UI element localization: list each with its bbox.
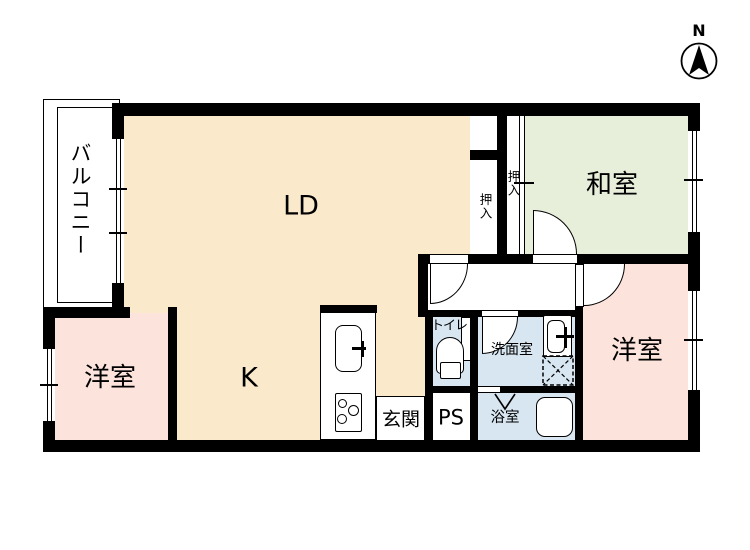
wall-toilet-right xyxy=(470,310,478,440)
wall-closet-stub xyxy=(470,150,497,160)
window-glazing xyxy=(692,131,693,232)
living-dining-floor xyxy=(124,116,470,256)
window-tick xyxy=(684,339,703,341)
window-ld-balcony xyxy=(112,139,124,283)
doorway-ld-hall xyxy=(430,254,468,264)
closet-ld-label: 押入 xyxy=(478,193,491,220)
doorway-japanese-room xyxy=(533,254,577,264)
compass-north-label: N xyxy=(692,23,705,39)
wall-top xyxy=(112,103,700,116)
wall-western-left-top xyxy=(43,307,130,318)
wall-bottom xyxy=(43,440,700,452)
toilet-label: トイレ xyxy=(431,320,467,333)
bathtub-icon xyxy=(536,397,573,437)
western-room-left-label: 洋室 xyxy=(84,365,136,391)
washing-machine-pan-icon xyxy=(542,355,574,386)
closet-washitsu-label: 押入 xyxy=(506,170,519,197)
window-glazing xyxy=(116,139,117,283)
wall-western-right-left xyxy=(575,305,583,440)
entrance-label: 玄関 xyxy=(382,411,420,430)
window-tick xyxy=(109,188,127,190)
living-dining-floor xyxy=(124,256,418,310)
window-glazing xyxy=(696,131,697,232)
window-tick xyxy=(109,232,127,234)
faucet-icon xyxy=(556,335,574,338)
folding-door-icon xyxy=(493,393,517,411)
kitchen-counter-top xyxy=(320,305,377,313)
bathroom-label: 浴室 xyxy=(491,411,520,426)
balcony-label: バルコニー xyxy=(69,142,90,257)
doorway-washroom xyxy=(482,310,518,317)
north-arrow-icon xyxy=(679,41,719,81)
window-japanese-room xyxy=(688,131,700,232)
wall-hall-top xyxy=(418,254,430,264)
wall-western-left-right xyxy=(168,307,177,452)
doorway-bathroom xyxy=(478,386,500,393)
wall-bath-top xyxy=(500,386,583,393)
western-room-right-label: 洋室 xyxy=(611,338,663,364)
living-dining-label: LD xyxy=(283,193,319,220)
wall-ps-top xyxy=(425,386,478,393)
window-tick xyxy=(684,179,703,181)
wall-hall-top xyxy=(577,254,700,264)
japanese-room-label: 和室 xyxy=(586,172,638,198)
stove-burner-icon xyxy=(348,405,359,416)
door-swing-arc xyxy=(430,264,468,304)
stove-burner-icon xyxy=(337,414,347,424)
sliding-door-line xyxy=(524,116,525,254)
kitchen-label: K xyxy=(240,365,258,392)
door-leaf-western-right xyxy=(575,264,584,307)
window-glazing xyxy=(120,139,121,283)
window-tick xyxy=(40,384,58,386)
stove-burner-icon xyxy=(338,399,347,408)
faucet-icon xyxy=(361,341,364,357)
pipe-space-label: PS xyxy=(438,408,464,429)
washroom-label: 洗面室 xyxy=(491,343,533,357)
floor-plan: バルコニー 玄関 PS xyxy=(0,0,750,550)
toilet-tank-icon xyxy=(440,362,461,379)
